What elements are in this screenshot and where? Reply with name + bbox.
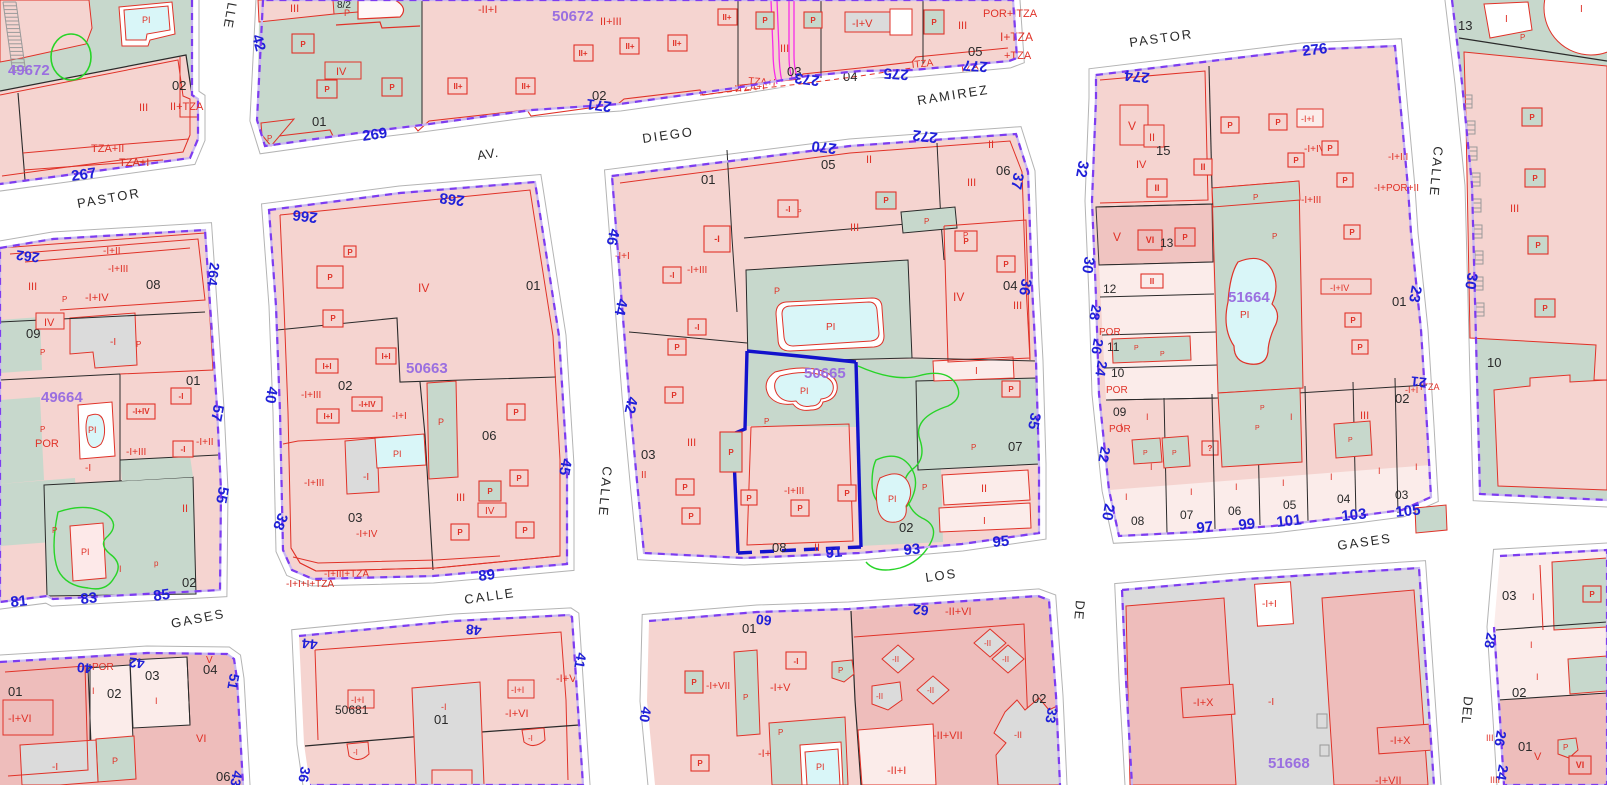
- svg-text:p: p: [154, 559, 159, 568]
- svg-text:05: 05: [1283, 498, 1297, 512]
- svg-text:277: 277: [962, 56, 988, 75]
- svg-text:-I: -I: [714, 234, 720, 244]
- svg-text:IV: IV: [1136, 159, 1147, 171]
- svg-text:50665: 50665: [804, 365, 846, 382]
- svg-text:49672: 49672: [8, 62, 50, 79]
- svg-text:P: P: [1293, 156, 1299, 165]
- svg-text:P: P: [671, 391, 677, 400]
- svg-text:83: 83: [80, 589, 98, 608]
- svg-text:II+III: II+III: [600, 16, 622, 28]
- svg-text:I: I: [1580, 4, 1583, 15]
- svg-text:49664: 49664: [41, 389, 83, 406]
- svg-text:PI: PI: [88, 425, 97, 435]
- svg-text:II+: II+: [625, 42, 634, 51]
- svg-text:15: 15: [1156, 143, 1170, 158]
- svg-text:V: V: [206, 655, 213, 666]
- svg-text:-I: -I: [1268, 697, 1274, 708]
- svg-text:III: III: [780, 43, 789, 55]
- svg-text:02: 02: [1032, 691, 1046, 706]
- svg-text:II: II: [641, 470, 647, 481]
- svg-text:-II: -II: [876, 692, 883, 701]
- svg-text:28: 28: [1086, 303, 1104, 321]
- svg-text:-I: -I: [52, 762, 58, 773]
- svg-text:-I+II: -I+II: [196, 437, 214, 448]
- svg-text:P: P: [682, 483, 688, 492]
- svg-text:IV: IV: [485, 506, 495, 517]
- svg-text:-II+I: -II+I: [478, 4, 497, 16]
- svg-text:51: 51: [224, 672, 242, 690]
- svg-text:-I+IV: -I+IV: [358, 400, 376, 409]
- svg-text:P: P: [728, 448, 734, 457]
- svg-text:P: P: [688, 512, 694, 521]
- svg-text:275: 275: [883, 64, 909, 83]
- svg-text:264: 264: [204, 262, 223, 287]
- svg-text:I: I: [1282, 478, 1285, 488]
- svg-text:01: 01: [434, 712, 448, 727]
- svg-text:274: 274: [1123, 66, 1150, 86]
- svg-text:I: I: [1378, 466, 1381, 476]
- svg-text:30: 30: [1461, 271, 1481, 290]
- svg-text:II+: II+: [722, 13, 731, 22]
- svg-text:P: P: [1272, 232, 1277, 241]
- svg-text:P: P: [1172, 450, 1177, 457]
- svg-text:44: 44: [301, 635, 318, 653]
- svg-text:-I+III: -I+III: [108, 264, 128, 275]
- svg-text:11: 11: [1107, 340, 1120, 354]
- svg-text:PI: PI: [81, 547, 90, 557]
- svg-text:I: I: [1530, 640, 1533, 650]
- svg-text:05: 05: [821, 157, 835, 172]
- svg-text:II: II: [182, 503, 188, 515]
- svg-text:03: 03: [1395, 488, 1409, 502]
- svg-text:-I+II: -I+II: [103, 246, 121, 257]
- svg-text:09: 09: [1113, 405, 1127, 419]
- svg-text:II+: II+: [453, 82, 462, 91]
- svg-text:03: 03: [641, 447, 655, 462]
- svg-text:30: 30: [1078, 255, 1098, 274]
- svg-text:-II: -II: [927, 686, 934, 695]
- svg-text:IV: IV: [418, 281, 429, 295]
- svg-text:-I: -I: [179, 392, 184, 401]
- svg-text:P: P: [62, 295, 67, 304]
- svg-text:POR+ITZA: POR+ITZA: [983, 8, 1038, 20]
- svg-text:P: P: [1160, 351, 1165, 358]
- svg-text:08: 08: [772, 540, 786, 555]
- svg-text:95: 95: [992, 533, 1010, 551]
- svg-text:270: 270: [811, 137, 838, 157]
- svg-text:-I+I: -I+I: [392, 411, 407, 422]
- svg-text:93: 93: [903, 541, 921, 559]
- svg-text:P: P: [971, 443, 976, 452]
- svg-text:DE: DE: [1071, 600, 1088, 621]
- svg-text:I: I: [119, 564, 122, 574]
- svg-text:45: 45: [555, 457, 575, 476]
- svg-text:P: P: [1253, 193, 1258, 202]
- svg-text:P: P: [1350, 316, 1356, 325]
- svg-text:-I+V: -I+V: [556, 673, 577, 685]
- svg-text:02: 02: [182, 575, 196, 590]
- svg-text:24: 24: [1493, 763, 1511, 781]
- svg-text:37: 37: [1007, 171, 1027, 190]
- svg-text:46: 46: [603, 227, 623, 247]
- svg-text:02: 02: [1512, 685, 1526, 700]
- svg-text:269: 269: [361, 125, 388, 145]
- svg-text:P: P: [438, 417, 444, 427]
- svg-text:I: I: [1505, 14, 1508, 25]
- svg-text:P: P: [774, 286, 780, 296]
- svg-text:POR: POR: [1106, 385, 1128, 396]
- svg-text:PI: PI: [1240, 310, 1249, 321]
- svg-text:-I+V: -I+V: [770, 682, 791, 694]
- svg-text:P: P: [743, 693, 748, 702]
- svg-text:50672: 50672: [552, 8, 594, 25]
- svg-text:271: 271: [586, 95, 613, 115]
- svg-text:P: P: [924, 217, 929, 226]
- svg-text:02: 02: [338, 378, 352, 393]
- svg-text:P: P: [1134, 345, 1139, 352]
- svg-text:P: P: [330, 314, 336, 323]
- svg-text:I: I: [1235, 482, 1238, 492]
- svg-text:40: 40: [76, 659, 93, 677]
- svg-text:P: P: [516, 474, 522, 483]
- svg-text:01: 01: [526, 278, 540, 293]
- svg-text:-II: -II: [984, 639, 991, 648]
- svg-text:P: P: [112, 756, 118, 766]
- svg-text:04: 04: [1003, 278, 1017, 293]
- svg-text:23: 23: [1405, 284, 1425, 303]
- svg-text:P: P: [327, 273, 333, 282]
- svg-text:36: 36: [1015, 277, 1035, 296]
- svg-text:-I+III: -I+III: [687, 265, 707, 276]
- svg-text:-I: -I: [670, 271, 675, 280]
- svg-text:III: III: [139, 102, 148, 114]
- svg-text:-I: -I: [353, 748, 358, 757]
- svg-text:P: P: [1529, 113, 1535, 122]
- svg-text:48: 48: [465, 621, 482, 639]
- svg-text:I: I: [1536, 672, 1539, 682]
- svg-text:III: III: [28, 281, 37, 293]
- svg-text:P: P: [267, 134, 272, 143]
- svg-text:50663: 50663: [406, 360, 448, 377]
- svg-text:P: P: [762, 16, 768, 25]
- svg-text:-I: -I: [363, 472, 369, 483]
- svg-text:10: 10: [1487, 355, 1501, 370]
- svg-text:II: II: [988, 139, 994, 151]
- svg-text:P: P: [1357, 343, 1363, 352]
- svg-text:13: 13: [1160, 236, 1174, 250]
- svg-text:II: II: [1200, 162, 1205, 172]
- svg-text:21: 21: [1410, 373, 1427, 391]
- svg-text:I: I: [1150, 462, 1153, 472]
- svg-text:II: II: [814, 542, 820, 554]
- svg-text:II: II: [1154, 183, 1159, 193]
- svg-text:99: 99: [1238, 515, 1256, 534]
- svg-text:262: 262: [15, 247, 40, 266]
- svg-text:P: P: [522, 526, 528, 535]
- svg-text:PI: PI: [800, 386, 809, 396]
- svg-text:P: P: [136, 340, 141, 349]
- svg-text:I: I: [92, 686, 95, 696]
- svg-text:-I+IV: -I+IV: [1330, 283, 1349, 293]
- svg-text:41: 41: [571, 651, 589, 669]
- svg-text:-I+III: -I+III: [301, 390, 321, 401]
- svg-text:43: 43: [227, 769, 245, 785]
- svg-text:III: III: [290, 3, 299, 15]
- svg-text:-I: -I: [695, 323, 700, 332]
- svg-text:-I+IV: -I+IV: [85, 292, 109, 304]
- svg-text:02: 02: [107, 686, 121, 701]
- svg-text:IV: IV: [336, 66, 347, 78]
- svg-text:I: I: [1415, 462, 1418, 472]
- svg-text:-II+I: -II+I: [887, 765, 906, 777]
- svg-text:-I+VI: -I+VI: [8, 713, 32, 725]
- svg-text:-I+X: -I+X: [1390, 735, 1411, 747]
- svg-text:P: P: [300, 40, 306, 49]
- svg-text:II: II: [866, 154, 872, 166]
- svg-text:II+: II+: [672, 39, 681, 48]
- svg-text:-I+I: -I+I: [1262, 599, 1277, 610]
- svg-text:I: I: [975, 366, 978, 377]
- svg-text:P: P: [344, 8, 350, 18]
- svg-text:03: 03: [145, 668, 159, 683]
- svg-text:P: P: [778, 728, 783, 737]
- svg-text:P: P: [52, 526, 57, 535]
- svg-text:P: P: [1563, 743, 1568, 752]
- svg-text:P: P: [347, 248, 353, 257]
- svg-text:04: 04: [1337, 492, 1351, 506]
- svg-text:P: P: [389, 83, 395, 92]
- svg-text:-I+IV: -I+IV: [356, 529, 378, 540]
- svg-text:62: 62: [912, 601, 929, 619]
- svg-text:-I+VI: -I+VI: [505, 708, 529, 720]
- svg-text:P: P: [764, 417, 769, 426]
- svg-text:P: P: [513, 408, 519, 417]
- svg-text:I: I: [1146, 412, 1149, 422]
- svg-text:35: 35: [1024, 411, 1044, 430]
- svg-text:I+I: I+I: [323, 412, 332, 421]
- svg-text:PI: PI: [888, 494, 897, 504]
- svg-text:PI: PI: [816, 762, 825, 772]
- svg-text:10: 10: [1111, 366, 1125, 380]
- svg-text:P: P: [324, 85, 330, 94]
- svg-text:II+: II+: [521, 82, 530, 91]
- svg-text:01: 01: [701, 172, 715, 187]
- svg-text:P: P: [40, 348, 45, 357]
- svg-text:P: P: [1260, 405, 1265, 412]
- svg-text:I+I: I+I: [322, 362, 331, 371]
- svg-text:P: P: [1255, 425, 1260, 432]
- svg-text:-I: -I: [85, 463, 91, 474]
- svg-text:268: 268: [439, 189, 466, 209]
- svg-text:P: P: [1327, 144, 1333, 153]
- svg-text:-II+VII: -II+VII: [933, 730, 963, 742]
- svg-text:P: P: [487, 487, 493, 496]
- svg-text:III: III: [967, 177, 976, 189]
- svg-text:VI: VI: [1146, 235, 1155, 245]
- svg-text:24: 24: [1092, 359, 1110, 377]
- svg-text:-I: -I: [441, 702, 447, 712]
- svg-text:-I+III: -I+III: [126, 447, 146, 458]
- svg-text:P: P: [963, 231, 968, 240]
- svg-text:II: II: [1149, 132, 1155, 144]
- svg-text:51668: 51668: [1268, 755, 1310, 772]
- svg-text:50681: 50681: [335, 703, 369, 717]
- svg-text:-I+III: -I+III: [1301, 195, 1321, 206]
- svg-text:273: 273: [794, 69, 821, 89]
- svg-text:26: 26: [1088, 337, 1106, 355]
- svg-text:07: 07: [1008, 439, 1022, 454]
- svg-text:08: 08: [146, 277, 160, 292]
- svg-text:28: 28: [1481, 631, 1499, 649]
- svg-text:97: 97: [1196, 518, 1214, 537]
- svg-text:01: 01: [186, 373, 200, 388]
- svg-text:II: II: [1150, 277, 1154, 286]
- svg-text:POR: POR: [92, 662, 114, 673]
- svg-text:07: 07: [1180, 508, 1194, 522]
- svg-text:12: 12: [1103, 282, 1117, 296]
- svg-text:PI: PI: [826, 322, 835, 333]
- svg-text:PI: PI: [393, 449, 402, 459]
- svg-text:P: P: [1182, 233, 1188, 242]
- svg-text:P: P: [1520, 33, 1525, 42]
- svg-text:81: 81: [10, 592, 28, 611]
- svg-text:42: 42: [128, 654, 145, 672]
- svg-text:III: III: [850, 222, 859, 234]
- svg-text:33: 33: [1042, 706, 1060, 724]
- svg-text:P: P: [797, 209, 802, 216]
- svg-text:I: I: [1120, 422, 1123, 432]
- svg-text:P: P: [691, 678, 697, 687]
- svg-text:-I: -I: [528, 734, 533, 743]
- svg-text:42: 42: [621, 395, 641, 415]
- svg-text:105: 105: [1395, 501, 1422, 521]
- svg-text:P: P: [810, 16, 816, 25]
- svg-text:-II+VI: -II+VI: [945, 606, 972, 618]
- svg-text:01: 01: [8, 684, 22, 699]
- svg-text:I: I: [1532, 592, 1535, 602]
- svg-text:01: 01: [1392, 294, 1406, 309]
- svg-text:III: III: [1360, 410, 1369, 422]
- svg-text:P: P: [1342, 176, 1348, 185]
- svg-text:IV: IV: [44, 317, 55, 329]
- svg-text:P: P: [457, 528, 463, 537]
- svg-text:P: P: [746, 494, 752, 503]
- svg-text:-II: -II: [1002, 655, 1009, 664]
- svg-text:-I+VII: -I+VII: [1375, 775, 1402, 785]
- svg-text:V: V: [1534, 751, 1542, 763]
- svg-text:20: 20: [1098, 502, 1118, 521]
- svg-text:03: 03: [1502, 588, 1516, 603]
- svg-text:PI: PI: [142, 15, 151, 25]
- svg-text:272: 272: [912, 126, 939, 146]
- svg-text:P: P: [1003, 260, 1009, 269]
- svg-text:02: 02: [172, 78, 186, 93]
- svg-text:P: P: [697, 759, 703, 768]
- svg-text:40: 40: [636, 705, 654, 723]
- svg-text:03: 03: [348, 510, 362, 525]
- svg-text:TZA+II: TZA+II: [91, 143, 124, 155]
- svg-text:-II: -II: [892, 655, 899, 664]
- svg-text:-I+III: -I+III: [304, 478, 324, 489]
- svg-text:II: II: [981, 483, 987, 495]
- svg-text:TZA+I: TZA+I: [119, 157, 149, 169]
- svg-text:DEL: DEL: [1459, 696, 1476, 725]
- svg-text:P: P: [1348, 437, 1353, 444]
- svg-text:-I: -I: [110, 337, 116, 348]
- svg-text:III: III: [1510, 203, 1519, 215]
- svg-text:II+TZA: II+TZA: [170, 101, 204, 113]
- svg-text:-I+I: -I+I: [511, 685, 524, 695]
- svg-text:57: 57: [207, 403, 227, 422]
- svg-text:-I+X: -I+X: [1193, 697, 1214, 709]
- svg-text:I: I: [155, 696, 158, 706]
- svg-text:P: P: [1589, 590, 1595, 599]
- svg-text:01: 01: [312, 114, 326, 129]
- svg-text:P: P: [40, 425, 45, 434]
- svg-text:III: III: [958, 20, 967, 32]
- svg-text:01: 01: [1518, 739, 1532, 754]
- svg-text:I: I: [1190, 487, 1193, 497]
- svg-text:06: 06: [482, 428, 496, 443]
- svg-text:-I+V: -I+V: [852, 18, 873, 30]
- svg-text:II+: II+: [578, 49, 587, 58]
- svg-text:I: I: [1330, 472, 1333, 482]
- svg-text:22: 22: [1095, 445, 1113, 463]
- svg-text:26: 26: [1491, 729, 1509, 747]
- svg-text:POR: POR: [35, 438, 59, 450]
- svg-text:V: V: [1113, 230, 1121, 244]
- svg-text:I+I: I+I: [381, 352, 390, 361]
- svg-text:P: P: [797, 504, 803, 513]
- svg-text:-I+I+I+TZA: -I+I+I+TZA: [286, 579, 334, 590]
- svg-text:60: 60: [755, 611, 772, 629]
- svg-text:13: 13: [1458, 18, 1472, 33]
- svg-text:P: P: [674, 343, 680, 352]
- svg-text:P: P: [1143, 450, 1148, 457]
- svg-text:I: I: [1125, 492, 1128, 502]
- svg-text:06: 06: [996, 163, 1010, 178]
- svg-text:101: 101: [1276, 511, 1303, 531]
- svg-text:P: P: [1532, 174, 1538, 183]
- svg-text:P: P: [1275, 118, 1281, 127]
- svg-text:55: 55: [212, 485, 232, 504]
- svg-text:276: 276: [1301, 40, 1328, 60]
- svg-text:POR: POR: [1099, 327, 1121, 338]
- svg-text:91: 91: [825, 544, 843, 562]
- svg-text:P: P: [883, 196, 889, 205]
- svg-text:01: 01: [742, 621, 756, 636]
- svg-text:-I+IV: -I+IV: [132, 407, 150, 416]
- svg-text:IV: IV: [953, 290, 964, 304]
- svg-text:-I+III: -I+III: [784, 486, 804, 497]
- svg-text:P: P: [1349, 228, 1355, 237]
- svg-text:32: 32: [1072, 159, 1092, 178]
- svg-text:266: 266: [292, 206, 319, 226]
- svg-text:103: 103: [1341, 505, 1368, 525]
- svg-text:85: 85: [152, 586, 171, 605]
- svg-text:-I: -I: [794, 657, 799, 666]
- svg-text:-I+I: -I+I: [1301, 114, 1314, 124]
- svg-text:267: 267: [70, 165, 97, 185]
- svg-text:08: 08: [1131, 514, 1145, 528]
- svg-text:-I+VII: -I+VII: [706, 681, 730, 692]
- svg-text:-II: -II: [1014, 730, 1022, 740]
- svg-text:P: P: [838, 666, 843, 675]
- svg-text:I: I: [983, 516, 986, 527]
- svg-text:III: III: [1013, 300, 1022, 312]
- svg-text:51664: 51664: [1228, 289, 1270, 306]
- svg-text:III: III: [456, 492, 465, 504]
